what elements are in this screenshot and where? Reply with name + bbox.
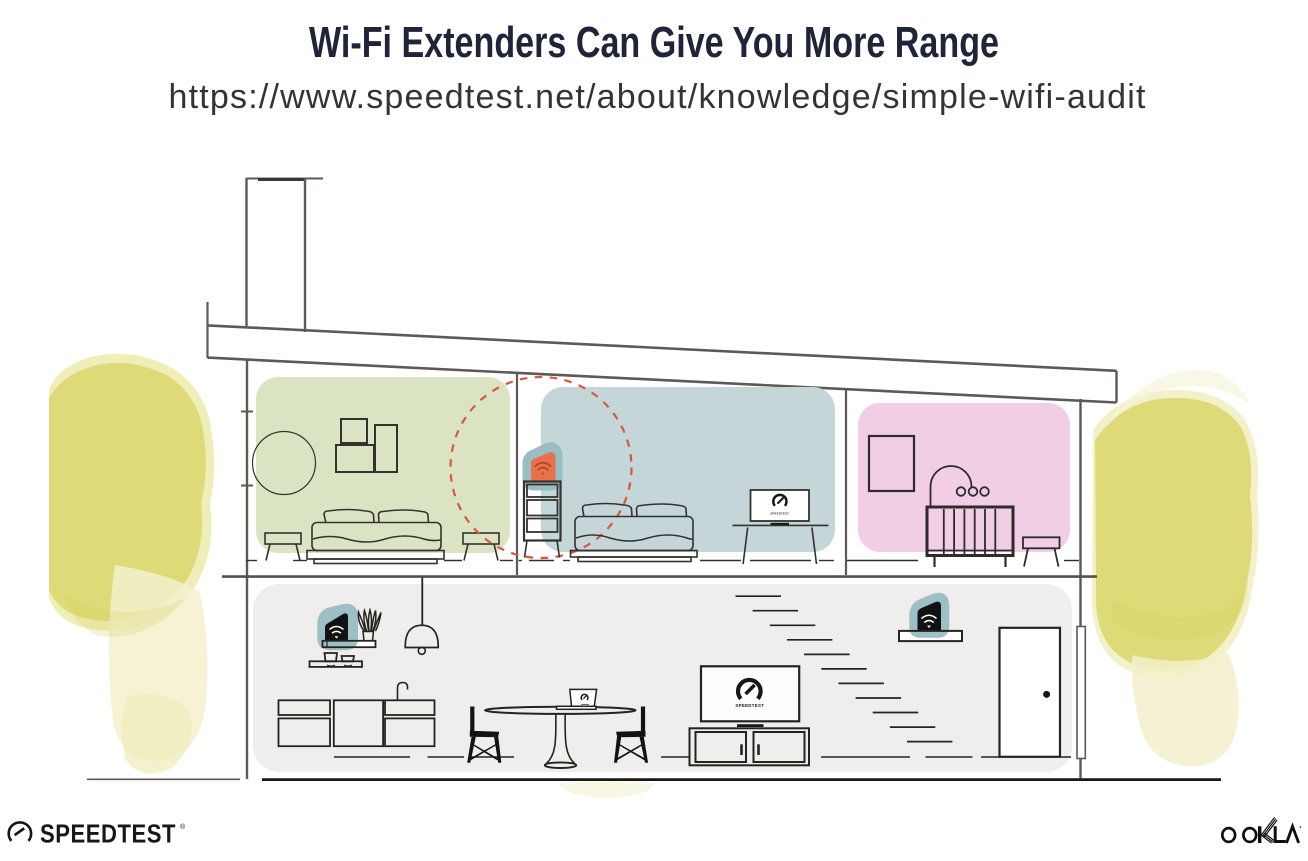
svg-text:SPEEDTEST: SPEEDTEST [770,512,789,516]
svg-text:SPEEDTEST: SPEEDTEST [40,821,176,849]
svg-text:SPEEDTEST: SPEEDTEST [735,703,764,708]
svg-text:®: ® [180,823,186,831]
svg-text:https://www.speedtest.net/abou: https://www.speedtest.net/about/knowledg… [169,78,1147,116]
svg-text:Wi-Fi Extenders Can Give You M: Wi-Fi Extenders Can Give You More Range [309,18,999,67]
